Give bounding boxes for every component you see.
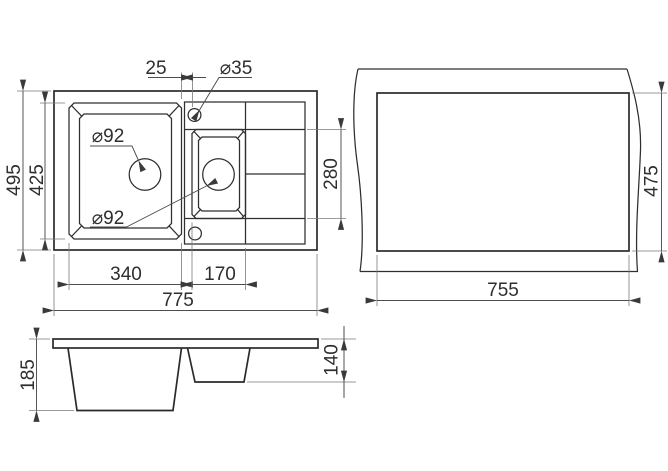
- small-bowl-corner-bevels: [194, 132, 244, 217]
- dim-overall-depth-label: 495: [4, 164, 25, 196]
- cutout-view: 475 755: [354, 69, 667, 306]
- small-drain-hole: [203, 159, 235, 191]
- dim-overall-width: 775: [54, 254, 317, 316]
- tap-hole-top: [188, 109, 201, 122]
- small-bowl-profile: [188, 348, 251, 382]
- dim-small-bowl-inner-depth-label: 280: [321, 158, 342, 190]
- cutout-rectangle: [377, 93, 629, 251]
- dim-small-drain: ⌀92: [90, 186, 207, 229]
- dim-bowl-gap: 25: [145, 58, 206, 107]
- dim-small-bowl-height-label: 140: [322, 344, 343, 376]
- main-bowl-corner-bevels: [72, 106, 180, 237]
- dim-main-bowl-width-label: 340: [110, 264, 142, 285]
- sink-technical-drawing: 495 425 25 ⌀35 ⌀92 ⌀92: [0, 0, 668, 471]
- dim-main-bowl-depth: 425: [27, 103, 65, 239]
- dim-small-bowl-height: 140: [247, 326, 356, 398]
- dim-cutout-width: 755: [377, 255, 629, 306]
- dim-main-bowl-depth-label: 425: [27, 164, 48, 196]
- drawing-sheet: 495 425 25 ⌀35 ⌀92 ⌀92: [0, 0, 668, 471]
- main-bowl-profile: [68, 348, 182, 411]
- dim-small-bowl-width-label: 170: [204, 264, 236, 285]
- dim-overall-width-label: 775: [162, 290, 194, 311]
- dim-overall-height-label: 185: [18, 359, 39, 391]
- dim-bowl-gap-label: 25: [145, 58, 166, 79]
- small-bowl-inner: [199, 137, 240, 211]
- dim-tap-hole-label: ⌀35: [220, 58, 253, 79]
- dim-main-drain-label: ⌀92: [92, 126, 125, 147]
- dim-main-drain: ⌀92: [90, 126, 139, 161]
- dim-cutout-depth-label: 475: [642, 165, 663, 197]
- dim-small-bowl-width: 170: [192, 223, 246, 291]
- main-bowl-outer: [69, 103, 182, 239]
- small-bowl-outer: [192, 130, 246, 219]
- break-line-left: [354, 69, 362, 272]
- dim-overall-height: 185: [18, 339, 74, 411]
- dim-cutout-width-label: 755: [487, 280, 519, 301]
- front-view: 185 140: [18, 326, 356, 411]
- dim-small-drain-label: ⌀92: [92, 208, 125, 229]
- dim-small-bowl-inner-depth: 280: [307, 130, 346, 219]
- rim-slab: [53, 339, 318, 348]
- main-drain-hole: [129, 159, 161, 191]
- plan-view: 495 425 25 ⌀35 ⌀92 ⌀92: [4, 58, 346, 316]
- tap-hole-bottom: [189, 227, 202, 240]
